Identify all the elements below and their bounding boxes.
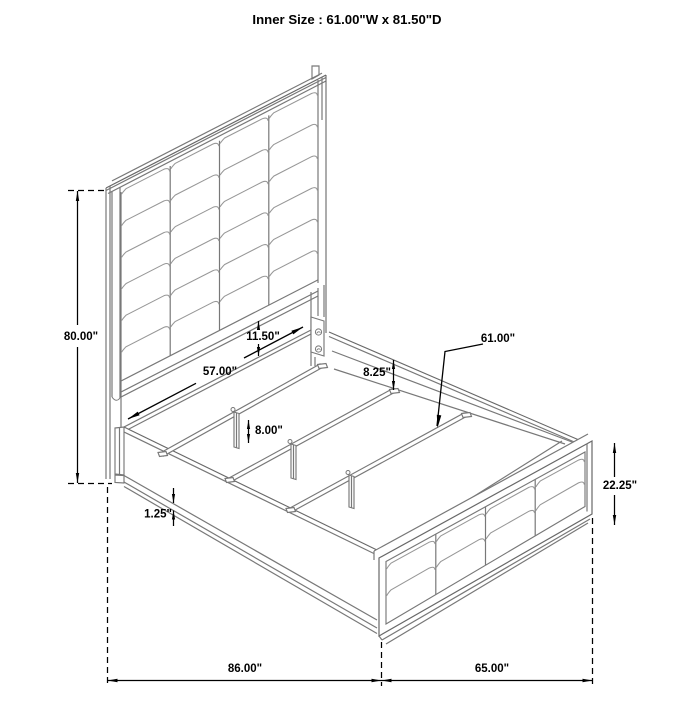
svg-text:80.00": 80.00"	[64, 331, 98, 343]
svg-text:8.25": 8.25"	[363, 367, 391, 379]
svg-text:86.00": 86.00"	[228, 663, 262, 675]
svg-text:8.00": 8.00"	[255, 425, 283, 437]
svg-text:1.25": 1.25"	[144, 509, 172, 521]
svg-text:65.00": 65.00"	[475, 663, 509, 675]
svg-text:61.00": 61.00"	[481, 333, 515, 345]
svg-text:22.25": 22.25"	[603, 480, 637, 492]
svg-text:57.00": 57.00"	[203, 366, 237, 378]
svg-text:Inner Size : 61.00"W x 81.50"D: Inner Size : 61.00"W x 81.50"D	[252, 12, 441, 27]
